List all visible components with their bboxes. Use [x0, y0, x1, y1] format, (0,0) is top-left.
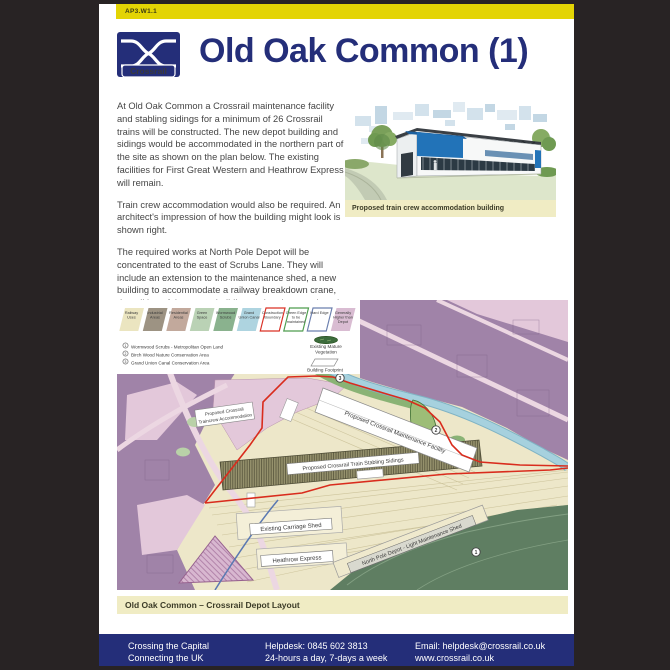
paragraph-1: At Old Oak Common a Crossrail maintenanc… [117, 100, 347, 190]
impression-figure: Proposed train crew accommodation buildi… [345, 98, 556, 217]
body-copy: At Old Oak Common a Crossrail maintenanc… [117, 100, 347, 332]
svg-text:Wormwood Scrubs - Metropolitan: Wormwood Scrubs - Metropolitan Open Land [131, 345, 224, 350]
map-caption: Old Oak Common – Crossrail Depot Layout [117, 596, 568, 614]
svg-text:Grand: Grand [244, 311, 255, 315]
logo-wordmark: Crossrail [130, 66, 167, 76]
svg-text:3: 3 [125, 360, 127, 364]
impression-image [345, 98, 556, 200]
poster-page: AP3.W1.1 Crossrail Old Oak Common (1) At… [99, 4, 574, 666]
svg-text:Depot: Depot [338, 320, 349, 324]
footer-contact: Email: helpdesk@crossrail.co.uk www.cros… [415, 640, 545, 664]
depot-map: Proposed Crossrail Maintenance Facility … [117, 300, 568, 590]
map-legend: RailwayUses IndustrialAreas ResidentialA… [117, 300, 360, 374]
document-code: AP3.W1.1 [125, 8, 157, 15]
svg-text:Areas: Areas [174, 316, 184, 320]
svg-text:Grand Union Canal Conservation: Grand Union Canal Conservation Area [131, 361, 210, 366]
svg-text:Hard Edge: Hard Edge [310, 311, 328, 315]
svg-text:Railway: Railway [125, 311, 138, 315]
svg-text:Generally: Generally [335, 311, 351, 315]
footer-website: www.crossrail.co.uk [415, 652, 545, 664]
footer-helpdesk: Helpdesk: 0845 602 3813 24-hours a day, … [265, 640, 387, 664]
svg-text:Vegetation: Vegetation [315, 350, 337, 355]
footer-tagline: Crossing the Capital Connecting the UK [128, 640, 209, 664]
paragraph-2: Train crew accommodation would also be r… [117, 199, 347, 237]
svg-text:to be: to be [292, 316, 300, 320]
poster-frame: { "header": { "code": "AP3.W1.1" }, "log… [0, 0, 670, 670]
map-marker-1: 1 [472, 548, 480, 556]
footer-email: Email: helpdesk@crossrail.co.uk [415, 640, 545, 652]
svg-text:2: 2 [125, 352, 127, 356]
vegetation-icon [315, 336, 338, 343]
map-figure: Proposed Crossrail Maintenance Facility … [117, 300, 568, 614]
svg-text:3: 3 [339, 376, 342, 382]
footprint-icon [311, 359, 338, 366]
svg-text:1: 1 [125, 344, 127, 348]
svg-text:Higher than: Higher than [333, 316, 353, 320]
svg-text:Areas: Areas [150, 316, 160, 320]
footer-bar: Crossing the Capital Connecting the UK H… [99, 634, 574, 666]
footer-helpdesk-hours: 24-hours a day, 7-days a week [265, 652, 387, 664]
svg-text:Construction: Construction [262, 311, 283, 315]
footer-helpdesk-phone: Helpdesk: 0845 602 3813 [265, 640, 387, 652]
svg-text:Union Canal: Union Canal [239, 316, 260, 320]
map-marker-3: 3 [336, 374, 344, 382]
svg-text:Residential: Residential [169, 311, 188, 315]
svg-text:Industrial: Industrial [147, 311, 163, 315]
svg-text:Green Edge: Green Edge [286, 311, 306, 315]
footer-tagline-line2: Connecting the UK [128, 652, 209, 664]
svg-text:1: 1 [475, 550, 478, 556]
svg-text:Birch Wood Nature Conservation: Birch Wood Nature Conservation Area [131, 353, 209, 358]
page-title: Old Oak Common (1) [199, 31, 528, 71]
svg-text:Building Footprint: Building Footprint [307, 368, 343, 373]
svg-text:Boundary: Boundary [264, 316, 280, 320]
impression-caption: Proposed train crew accommodation buildi… [345, 200, 556, 217]
svg-text:maintained: maintained [287, 320, 306, 324]
top-band: AP3.W1.1 [116, 4, 574, 19]
svg-text:2: 2 [435, 428, 438, 434]
footer-tagline-line1: Crossing the Capital [128, 640, 209, 652]
crossrail-logo: Crossrail [117, 32, 180, 79]
map-marker-2: 2 [432, 426, 440, 434]
svg-text:Green: Green [197, 311, 208, 315]
svg-text:Uses: Uses [127, 316, 136, 320]
svg-text:Scrubs: Scrubs [220, 316, 232, 320]
person-figure [434, 160, 437, 163]
svg-text:Wormwood: Wormwood [216, 311, 235, 315]
legend-numbered-items: 1 Wormwood Scrubs - Metropolitan Open La… [123, 343, 224, 366]
svg-text:Space: Space [197, 316, 208, 320]
svg-text:Existing Mature: Existing Mature [310, 344, 342, 349]
